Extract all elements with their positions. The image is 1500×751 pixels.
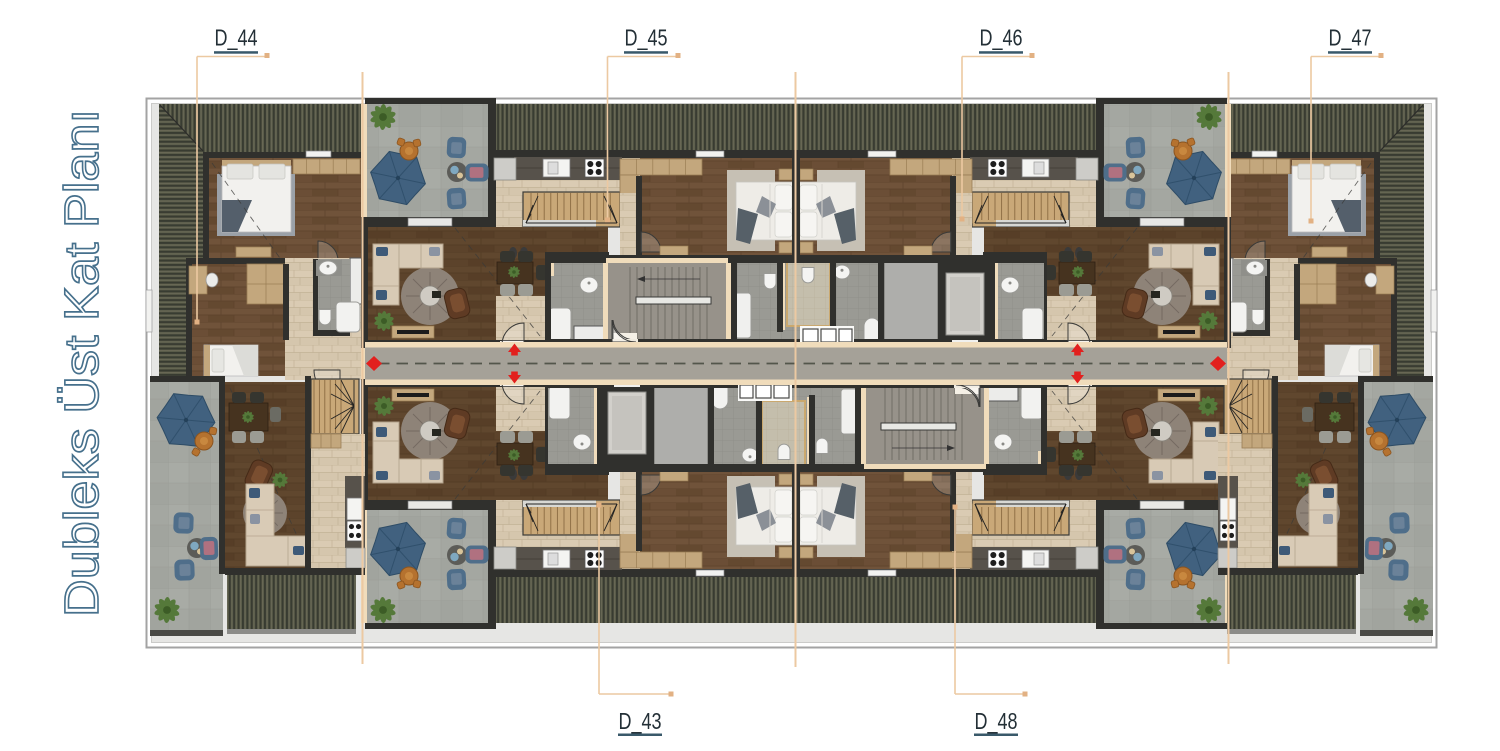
svg-text:D_45: D_45 (625, 25, 668, 51)
svg-text:D_46: D_46 (980, 25, 1023, 51)
svg-text:D_47: D_47 (1329, 25, 1372, 51)
svg-text:D_48: D_48 (975, 708, 1018, 734)
svg-text:Dubleks Üst Kat Planı: Dubleks Üst Kat Planı (56, 109, 109, 617)
svg-text:D_44: D_44 (215, 25, 258, 51)
svg-text:D_43: D_43 (619, 708, 662, 734)
